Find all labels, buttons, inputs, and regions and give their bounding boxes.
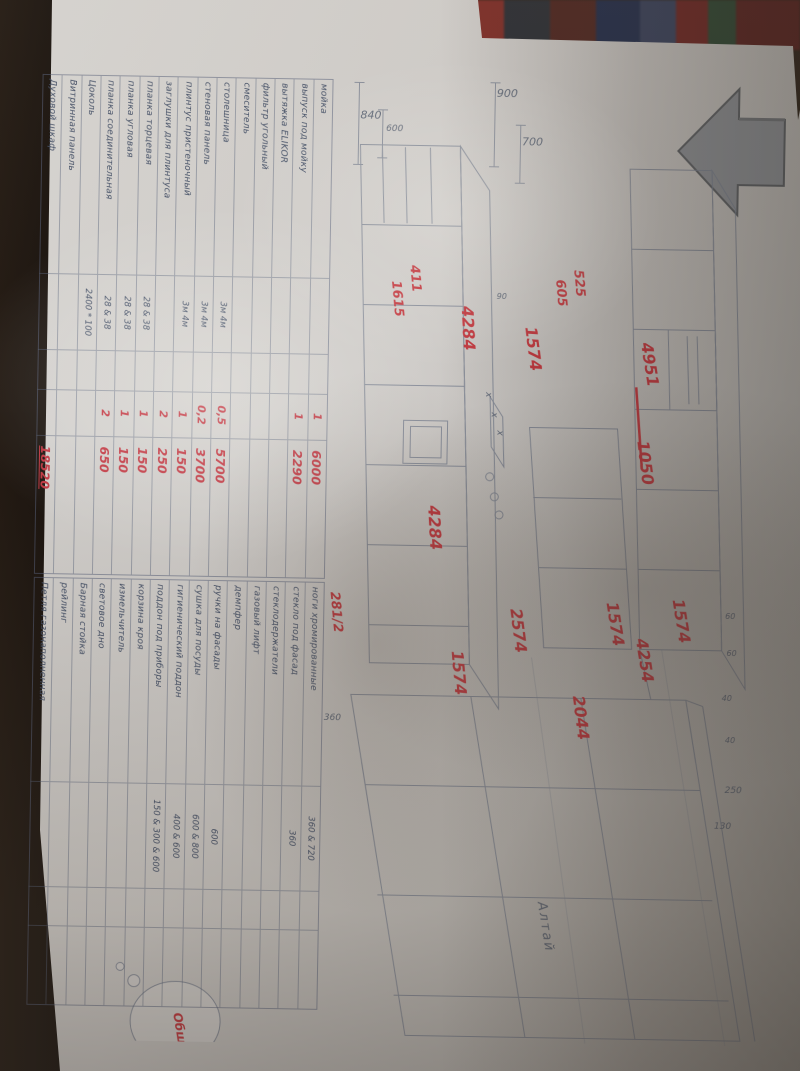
item-qty: 2 [153,392,172,438]
item-price [143,928,163,1006]
empty-cell [289,354,308,394]
item-price: 250 [151,437,172,575]
item-qty: 1 [134,391,153,437]
item-qty [261,890,280,930]
item-name: смеситель [233,78,255,277]
empty-cell [309,354,328,394]
item-size: 28 & 38 [97,275,117,351]
item-price: 2290 [286,440,307,578]
item-size [232,277,252,353]
item-name: фильтр угольный [253,79,275,278]
red-dim-4951: 4951 [637,340,663,388]
item-size [155,276,175,352]
item-name: планка соединительная [98,76,120,275]
item-size: 3м 4м [213,277,233,353]
item-qty: 0,5 [211,393,230,439]
red-dim-1574: 1574 [669,598,695,645]
item-price [267,439,288,577]
item-price [124,928,144,1006]
item-size [223,785,243,890]
item-price [26,926,47,1004]
item-price [279,931,299,1009]
item-name: выпуск под мойку [291,79,313,278]
item-price [182,929,202,1007]
item-name: рейлинг [51,578,73,782]
empty-cell [173,352,192,392]
item-size [309,279,329,355]
dim-130: 130 [714,822,732,832]
item-name: Духовой шкаф [39,75,62,274]
item-size: 150 & 300 & 600 [145,784,165,889]
sheet-content-rotated: 840 600 900 700 360 250 130 60 60 40 40 … [25,0,793,1052]
item-size: 400 & 600 [165,784,185,889]
item-size [58,274,78,350]
empty-cell [212,353,231,393]
item-name: световое дно [89,579,111,783]
item-price [66,927,86,1005]
empty-cell [77,350,96,390]
item-name: столешница [214,78,236,277]
item-name: гигиенический поддон [167,580,189,784]
item-size [242,786,262,891]
item-name: газовый лифт [244,582,266,786]
item-qty: 2 [95,391,114,437]
item-price [74,436,95,574]
item-price: 18520 [34,435,56,573]
item-name: мойка [311,80,333,279]
item-size: 3м 4м [193,277,213,353]
item-name: планка торцевая [137,77,159,276]
item-price [259,930,279,1008]
item-qty: 1 [115,391,134,437]
item-price [240,930,260,1008]
item-price [248,439,269,577]
item-qty [67,887,86,927]
empty-cell [154,352,173,392]
red-dim-1574: 1574 [603,600,629,647]
item-size: 600 [203,785,223,890]
item-price [228,439,249,577]
item-name: демпфер [225,581,247,785]
item-price [47,926,67,1004]
item-name: измельчитель [109,579,131,783]
item-name: вытяжка ELIKOR [272,79,294,278]
item-size [251,278,271,354]
item-size: 3м 4м [174,276,194,352]
item-qty [203,889,222,929]
empty-cell [37,350,57,390]
empty-cell [96,351,115,391]
item-qty: 1 [173,392,192,438]
item-name: сушка для посуды [186,581,208,785]
item-name: Витринная панель [60,75,82,274]
item-qty [269,394,288,440]
empty-cell [231,353,250,393]
red-dim-1615: 1615 [388,280,406,317]
empty-cell [251,353,270,393]
item-price [85,927,105,1005]
item-qty [250,393,269,439]
item-price: 150 [112,437,133,575]
red-dim-4284: 4284 [424,504,445,550]
red-note-281-2: 281/2 [327,591,346,633]
item-qty [76,390,95,436]
item-qty [125,888,144,928]
item-qty [87,887,106,927]
item-price: 3700 [190,438,211,576]
red-dim-1574: 1574 [521,326,545,373]
item-qty [231,393,250,439]
photo-of-estimate-sheet: 840 600 900 700 360 250 130 60 60 40 40 … [0,0,800,1071]
block-arrow-icon [677,88,785,216]
empty-cell [115,351,134,391]
red-dim-1574: 1574 [448,650,471,696]
item-qty [36,390,56,436]
item-size: 360 [281,786,301,891]
item-qty [183,889,202,929]
item-size [107,783,127,888]
item-qty [28,886,48,926]
item-qty [164,889,183,929]
red-dim-2044: 2044 [569,694,593,741]
item-name: планка угловая [118,76,140,275]
empty-cell [135,351,154,391]
item-price: 150 [132,437,153,575]
empty-cell [193,352,212,392]
item-price [201,929,221,1007]
item-size: 600 & 800 [184,785,204,890]
red-dim-4284: 4284 [458,304,479,350]
item-name: Петля газонаполненная [30,578,53,782]
dim-600: 600 [386,124,404,134]
item-price: 6000 [306,440,327,578]
accessories-table: ноги хромированные 360 & 720 стекло под … [26,577,324,1010]
item-size [271,278,291,354]
red-dim-2574: 2574 [506,607,530,654]
item-qty [222,890,241,930]
item-size [38,274,59,350]
estimate-table: мойка 1 6000 выпуск под мойку 1 2290 выт… [34,74,334,579]
dim-90: 90 [497,292,507,301]
dim-700: 700 [522,135,543,148]
item-qty [48,887,67,927]
item-name: плинтус пристеночный [175,77,197,276]
altai-note: Алтай [534,900,557,954]
item-name: Барная стойка [70,579,92,783]
item-price [221,930,241,1008]
hob-mark-x: х [489,411,499,418]
item-qty: 1 [308,394,327,440]
item-name: ручки на фасады [205,581,227,785]
dim-250: 250 [725,786,743,796]
item-qty [280,891,299,931]
dim-40: 40 [725,736,735,745]
item-name: корзина кроя [128,580,150,784]
item-price [298,931,318,1009]
hob-mark-x: х [494,429,504,436]
item-name: стекло под фасад [283,582,305,786]
dim-40: 40 [722,694,732,703]
item-size [49,782,69,887]
item-qty [106,888,125,928]
item-name: ноги хромированные [302,583,324,787]
item-size [290,278,310,354]
item-name: стеновая панель [195,78,217,277]
item-qty [57,390,76,436]
dim-840: 840 [360,108,381,121]
item-size [68,783,88,888]
item-name: заглушки для плинтуса [156,77,178,276]
item-qty [299,891,318,931]
empty-cell [58,350,77,390]
red-dim-605: 605 [552,279,569,307]
pencil-dimension-labels: 840 600 900 700 360 250 130 60 60 40 40 … [320,84,755,957]
item-price: 650 [93,436,114,574]
item-size [261,786,281,891]
dim-60: 60 [726,649,736,658]
item-size: 28 & 38 [116,275,136,351]
item-name: поддон под приборы [147,580,169,784]
item-price [54,436,75,574]
item-size: 2400 * 100 [78,275,98,351]
item-qty [145,888,164,928]
item-name: стеклодержатели [263,582,285,786]
item-qty [241,890,260,930]
item-price: 150 [170,438,191,576]
item-size: 28 & 38 [136,276,156,352]
item-price: 5700 [209,438,230,576]
item-qty: 1 [289,394,308,440]
item-size: 360 & 720 [300,787,320,892]
empty-cell [270,354,289,394]
dim-360: 360 [324,713,342,723]
item-name: Цоколь [79,76,101,275]
item-size [126,784,146,889]
dim-900: 900 [497,87,518,100]
red-dim-525: 525 [570,269,587,297]
hob-mark-x: х [483,391,493,398]
item-price [163,929,183,1007]
red-dim-1050: 1050 [633,440,657,487]
item-qty: 0,2 [192,392,211,438]
red-dim-4254: 4254 [632,636,658,684]
item-price [105,927,125,1005]
item-size [88,783,108,888]
red-dim-411: 411 [406,263,423,292]
dim-60: 60 [725,612,735,621]
item-size [29,782,50,887]
